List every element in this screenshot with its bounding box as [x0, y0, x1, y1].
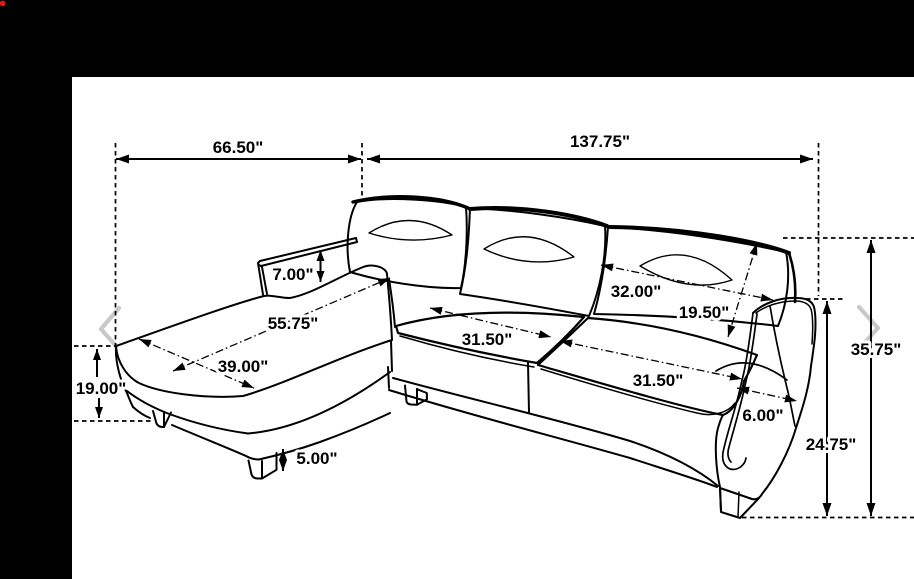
svg-text:19.00": 19.00" — [76, 379, 127, 398]
svg-text:5.00": 5.00" — [296, 449, 337, 468]
svg-text:19.50": 19.50" — [679, 303, 730, 322]
svg-text:31.50": 31.50" — [462, 330, 513, 349]
svg-text:31.50": 31.50" — [633, 371, 684, 390]
svg-text:39.00": 39.00" — [218, 357, 269, 376]
svg-text:24.75": 24.75" — [806, 435, 857, 454]
svg-text:55.75": 55.75" — [268, 314, 319, 333]
svg-text:66.50": 66.50" — [213, 138, 264, 157]
svg-text:32.00": 32.00" — [611, 282, 662, 301]
svg-text:35.75": 35.75" — [851, 340, 902, 359]
svg-text:6.00": 6.00" — [742, 406, 783, 425]
svg-text:7.00": 7.00" — [272, 265, 313, 284]
svg-text:137.75": 137.75" — [570, 132, 630, 151]
